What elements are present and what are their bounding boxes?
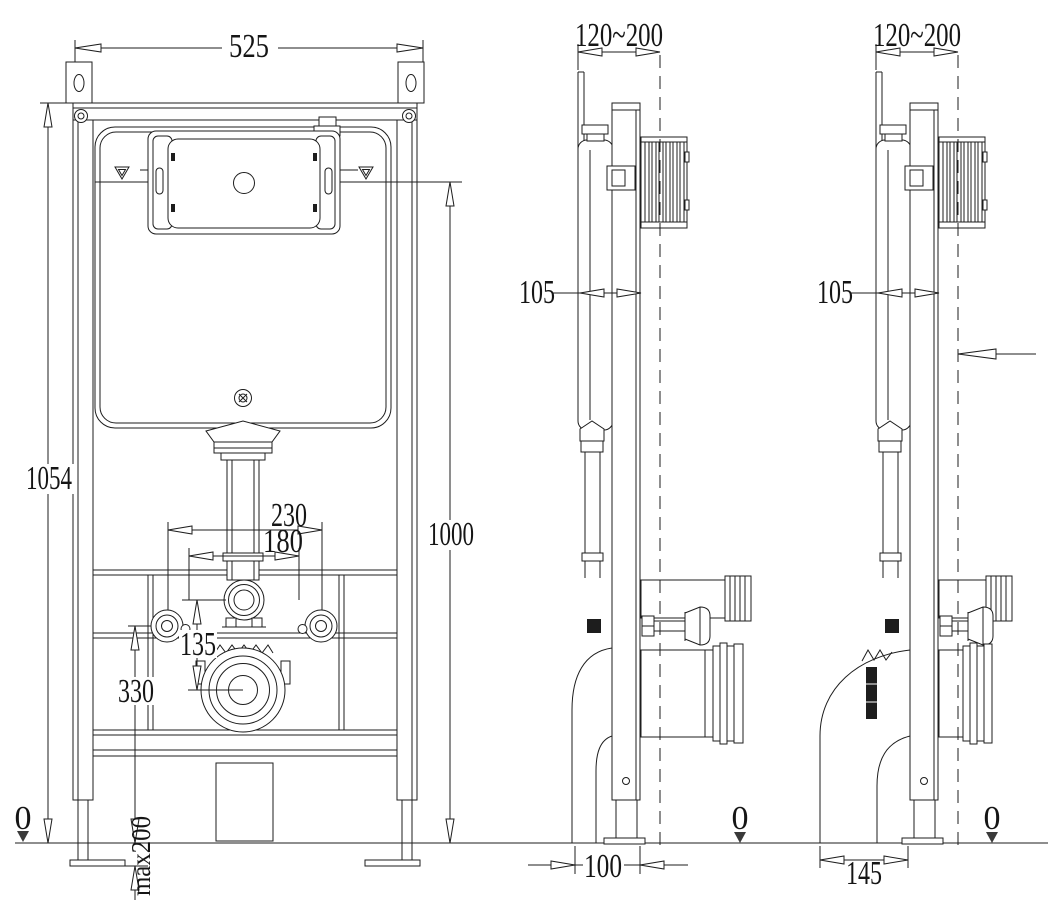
drain-channel xyxy=(216,763,273,841)
datum-label-front: 0 xyxy=(15,800,32,837)
dim-label-depth-range-b: 120~200 xyxy=(873,17,961,54)
datum-label-side-b: 0 xyxy=(984,800,1001,837)
push-button-hole xyxy=(234,173,255,194)
dim-label-frame-depth-b: 105 xyxy=(817,274,853,311)
dim-label-spacing-inner: 180 xyxy=(263,523,303,560)
waste-flange-side xyxy=(939,643,992,744)
dim-label-front-width: 525 xyxy=(229,28,269,65)
dim-label-outlet-height: 330 xyxy=(118,673,154,710)
dim-label-foot-adjustment: max200 xyxy=(126,816,156,896)
dim-label-outlet-offset-a: 100 xyxy=(584,848,622,885)
dim-label-right-height: 1000 xyxy=(428,516,474,553)
pan-seal xyxy=(866,667,877,719)
dim-label-outlet-offset-b: 145 xyxy=(846,855,882,892)
toilet-frame-installation-drawing: 525 1054 1000 230 180 135 330 max200 0 1… xyxy=(0,0,1064,917)
waste-flange-side xyxy=(641,643,743,744)
dim-label-depth-range-a: 120~200 xyxy=(575,17,663,54)
dim-label-connector-offset: 135 xyxy=(180,626,216,663)
access-panel xyxy=(148,131,340,234)
dim-label-frame-depth-a: 105 xyxy=(519,274,555,311)
datum-label-side-a: 0 xyxy=(732,800,749,837)
dim-label-total-height: 1054 xyxy=(26,460,72,497)
cistern-screw xyxy=(235,390,252,407)
flush-connector xyxy=(222,580,266,627)
technical-drawing-canvas: 525 1054 1000 230 180 135 330 max200 0 1… xyxy=(0,0,1064,917)
